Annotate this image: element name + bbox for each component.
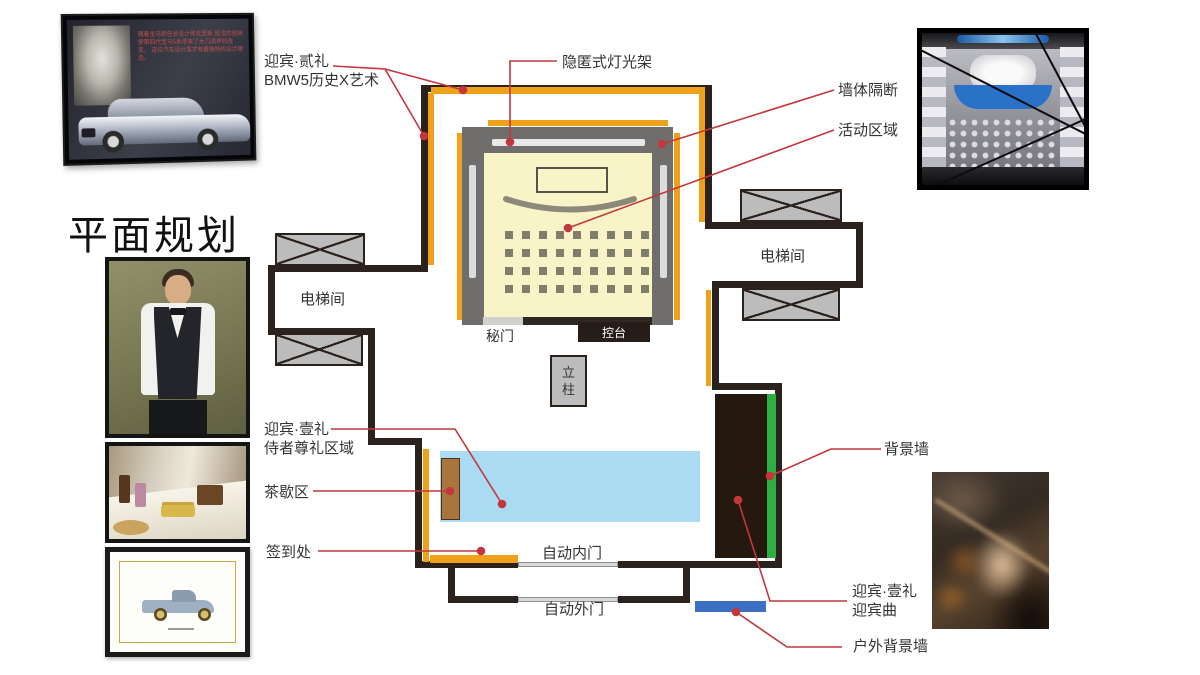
slide-canvas: 随着宝马新任总设计师克里斯·班戈的到来 使第四代宝马5系带来了大刀阔斧的改变， … <box>0 0 1200 675</box>
light-rack-lower-left <box>423 449 429 562</box>
wall-left-upper <box>421 85 428 272</box>
sign-in-strip <box>430 555 518 563</box>
wall-elevator-left-side <box>268 265 275 335</box>
light-rack-stage-right <box>674 133 680 320</box>
callout-welcome-first-service: 迎宾·壹礼 侍者尊礼区域 <box>264 420 354 458</box>
reception-pool-area <box>440 451 700 522</box>
bmw-photo-caption: 随着宝马新任总设计师克里斯·班戈的到来 使第四代宝马5系带来了大刀阔斧的改变， … <box>138 30 245 63</box>
callout-wall-partition: 墙体隔断 <box>838 81 898 100</box>
bmw-caption-line: 随着宝马新任总设计师克里斯·班戈的到来 <box>138 31 243 38</box>
venue-render-photo <box>917 28 1089 190</box>
elevator-shaft <box>740 189 842 222</box>
light-rack-right-lower <box>706 290 711 386</box>
waiter-photo <box>105 257 250 438</box>
secret-door-opening <box>483 317 523 325</box>
stage-screen <box>536 167 608 193</box>
wall-left-lower <box>415 438 422 568</box>
callout-sign-in: 签到处 <box>266 543 311 562</box>
outdoor-background-wall-bar <box>695 601 766 612</box>
elevator-shaft <box>275 233 365 266</box>
wall-elevator-right-top <box>705 222 863 229</box>
callout-welcome-first-music: 迎宾·壹礼 迎宾曲 <box>852 582 917 620</box>
callout-activity-area: 活动区域 <box>838 121 898 140</box>
light-rack-top <box>431 87 705 94</box>
wall-right-upper <box>705 85 712 229</box>
wall-elevator-left-top <box>268 265 428 272</box>
pillar: 立柱 <box>550 355 587 407</box>
callout-welcome-second: 迎宾·贰礼 BMW5历史X艺术 <box>264 52 379 90</box>
stage-curve <box>500 194 640 218</box>
bmw-car-image <box>78 89 251 154</box>
wall-backdrop-right <box>775 383 782 568</box>
wall-bottom-right <box>618 561 782 568</box>
room-label-elevator-right: 电梯间 <box>760 247 805 266</box>
wall-vestibule-bottom-left <box>448 596 518 603</box>
callout-outdoor-background-wall: 户外背景墙 <box>853 637 928 656</box>
background-wall-dark <box>715 394 767 558</box>
wall-left-jut <box>368 438 422 445</box>
wall-elevator-right-side <box>856 222 863 288</box>
stage-light-bar-right <box>660 165 667 278</box>
bmw-caption-line: 这位汽车设计鬼才有着独特的设计理念。 <box>138 47 243 62</box>
elevator-shaft <box>275 333 363 366</box>
room-label-inner-door: 自动内门 <box>542 544 602 563</box>
light-rack-right <box>699 93 705 222</box>
wall-right-mid <box>712 281 719 390</box>
room-label-secret-door: 秘门 <box>486 327 514 346</box>
wall-elevator-right-bottom <box>712 281 863 288</box>
stage-light-bar-left <box>469 165 476 278</box>
seat-grid <box>505 231 649 293</box>
callout-tea-break: 茶歇区 <box>264 483 309 502</box>
light-rack-stage-top <box>488 120 668 126</box>
bmw-history-photo: 随着宝马新任总设计师克里斯·班戈的到来 使第四代宝马5系带来了大刀阔斧的改变， … <box>61 13 257 166</box>
bmw-photo-background: 随着宝马新任总设计师克里斯·班戈的到来 使第四代宝马5系带来了大刀阔斧的改变， … <box>67 19 251 160</box>
classic-car-art-photo <box>105 547 250 657</box>
tea-break-photo <box>105 442 250 543</box>
elevator-shaft <box>742 288 840 321</box>
callout-background-wall: 背景墙 <box>884 440 929 459</box>
light-rack-left <box>428 93 434 265</box>
callout-hidden-light-rack: 隐匿式灯光架 <box>562 53 652 72</box>
wall-vestibule-right <box>683 568 690 603</box>
console-desk: 控台 <box>578 322 650 342</box>
room-label-elevator-left: 电梯间 <box>300 290 345 309</box>
stage-light-bar <box>492 139 645 146</box>
wall-backdrop-top <box>712 383 782 390</box>
background-wall-green <box>767 394 776 558</box>
tea-break-table <box>441 458 460 520</box>
wall-left-mid <box>368 328 375 445</box>
wall-vestibule-bottom-right <box>618 596 690 603</box>
page-title: 平面规划 <box>68 203 240 261</box>
room-label-outer-door: 自动外门 <box>544 600 604 619</box>
violin-photo <box>932 472 1049 629</box>
